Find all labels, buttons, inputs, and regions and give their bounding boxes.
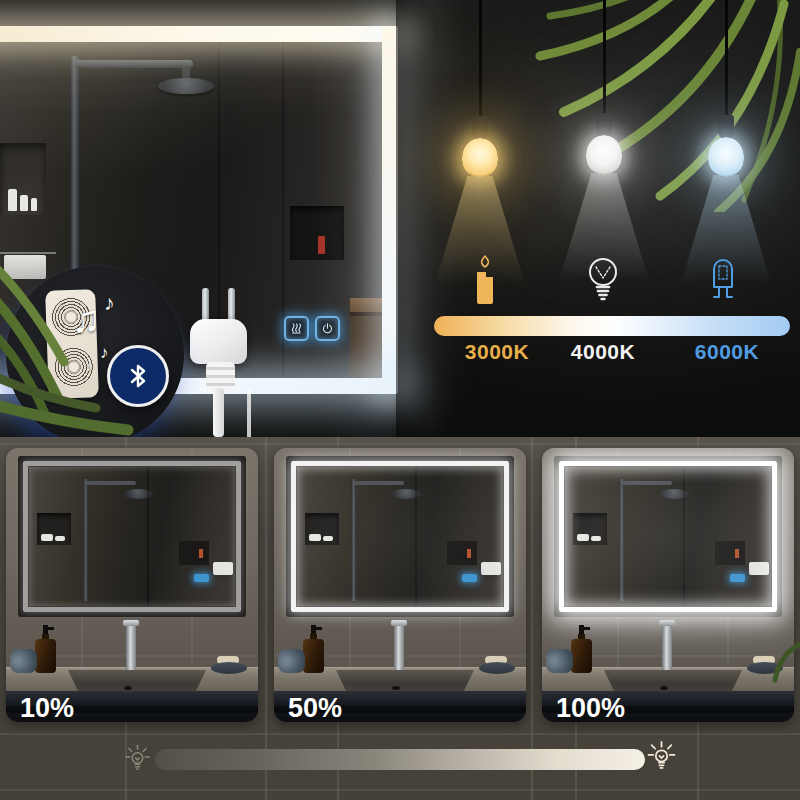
soap-dish bbox=[479, 662, 515, 674]
color-temperature-gradient-bar bbox=[434, 316, 790, 336]
product-image: ♫ ♪ ♪ ♪ bbox=[0, 0, 800, 800]
soap-bottle bbox=[571, 625, 592, 673]
cct-label-6000k: 6000K bbox=[695, 340, 759, 364]
plug-pin bbox=[202, 288, 209, 322]
rolled-towel bbox=[278, 649, 305, 673]
bulb-socket bbox=[472, 116, 488, 140]
sink-basin bbox=[68, 670, 206, 693]
brightness-label: 50% bbox=[288, 693, 342, 722]
label-strip: 100% bbox=[542, 691, 794, 722]
soap-bottle bbox=[303, 625, 324, 673]
bulb-socket bbox=[718, 115, 734, 139]
rolled-towel bbox=[10, 649, 37, 673]
vanity-counter bbox=[350, 298, 382, 312]
bulb-cord bbox=[603, 0, 606, 115]
dimming-panel-50: 50% bbox=[274, 448, 526, 722]
brightness-label: 10% bbox=[20, 693, 74, 722]
bulb-socket bbox=[596, 113, 612, 137]
touch-controls bbox=[284, 316, 340, 341]
dimming-section: 10% bbox=[0, 437, 800, 800]
dimming-panel-100: 100% bbox=[542, 448, 794, 722]
defog-button bbox=[284, 316, 309, 341]
bottle bbox=[31, 198, 37, 211]
sink-basin bbox=[336, 670, 474, 693]
led-mirror bbox=[286, 456, 514, 617]
bulb-cord bbox=[725, 0, 728, 117]
rain-shower-head bbox=[158, 78, 214, 94]
label-strip: 10% bbox=[6, 691, 258, 722]
led-frame bbox=[291, 461, 509, 612]
label-strip: 50% bbox=[274, 691, 526, 722]
warm-bulb bbox=[462, 138, 498, 178]
bulb-bright-icon bbox=[647, 740, 676, 778]
bottle bbox=[20, 195, 28, 211]
incandescent-bulb-icon bbox=[583, 256, 623, 310]
wall-niche bbox=[290, 206, 344, 260]
dimming-panel-10: 10% bbox=[6, 448, 258, 722]
bathroom-scene: ♫ ♪ ♪ ♪ bbox=[0, 0, 800, 437]
defog-icon bbox=[290, 322, 303, 335]
power-button bbox=[315, 316, 340, 341]
led-mirror bbox=[18, 456, 246, 617]
palm-leaf-decoration bbox=[772, 642, 800, 684]
power-cable bbox=[247, 390, 251, 437]
led-frame bbox=[23, 461, 241, 612]
soap-dish bbox=[211, 662, 247, 674]
soap-bottle bbox=[35, 625, 56, 673]
shower-arm bbox=[75, 60, 193, 68]
bulb-cord bbox=[479, 0, 482, 118]
sink-basin bbox=[604, 670, 742, 693]
plug-pin bbox=[228, 288, 235, 322]
color-temperature-scale: 3000K 4000K 6000K bbox=[430, 252, 793, 370]
candle-icon bbox=[472, 254, 498, 310]
cct-label-4000k: 4000K bbox=[571, 340, 635, 364]
brightness-label: 100% bbox=[556, 693, 625, 722]
led-strip-top bbox=[0, 26, 398, 42]
brightness-slider-bar bbox=[155, 749, 645, 770]
palm-leaf-decoration bbox=[532, 0, 800, 212]
bottle bbox=[8, 189, 17, 211]
cct-label-3000k: 3000K bbox=[465, 340, 529, 364]
palm-leaf-decoration bbox=[0, 258, 190, 436]
led-mirror bbox=[554, 456, 782, 617]
rolled-towel bbox=[546, 649, 573, 673]
vanity-cabinet bbox=[350, 312, 382, 380]
bulb-dim-icon bbox=[124, 743, 151, 779]
plug-neck bbox=[206, 362, 235, 390]
red-bottle bbox=[318, 236, 325, 254]
led-frame bbox=[559, 461, 777, 612]
neutral-bulb bbox=[586, 135, 622, 175]
power-icon bbox=[321, 322, 334, 335]
power-cable bbox=[213, 388, 224, 437]
wall-niche bbox=[0, 143, 46, 215]
cool-bulb bbox=[708, 137, 744, 177]
plug-body bbox=[190, 319, 247, 364]
halogen-bulb-icon bbox=[706, 256, 740, 310]
